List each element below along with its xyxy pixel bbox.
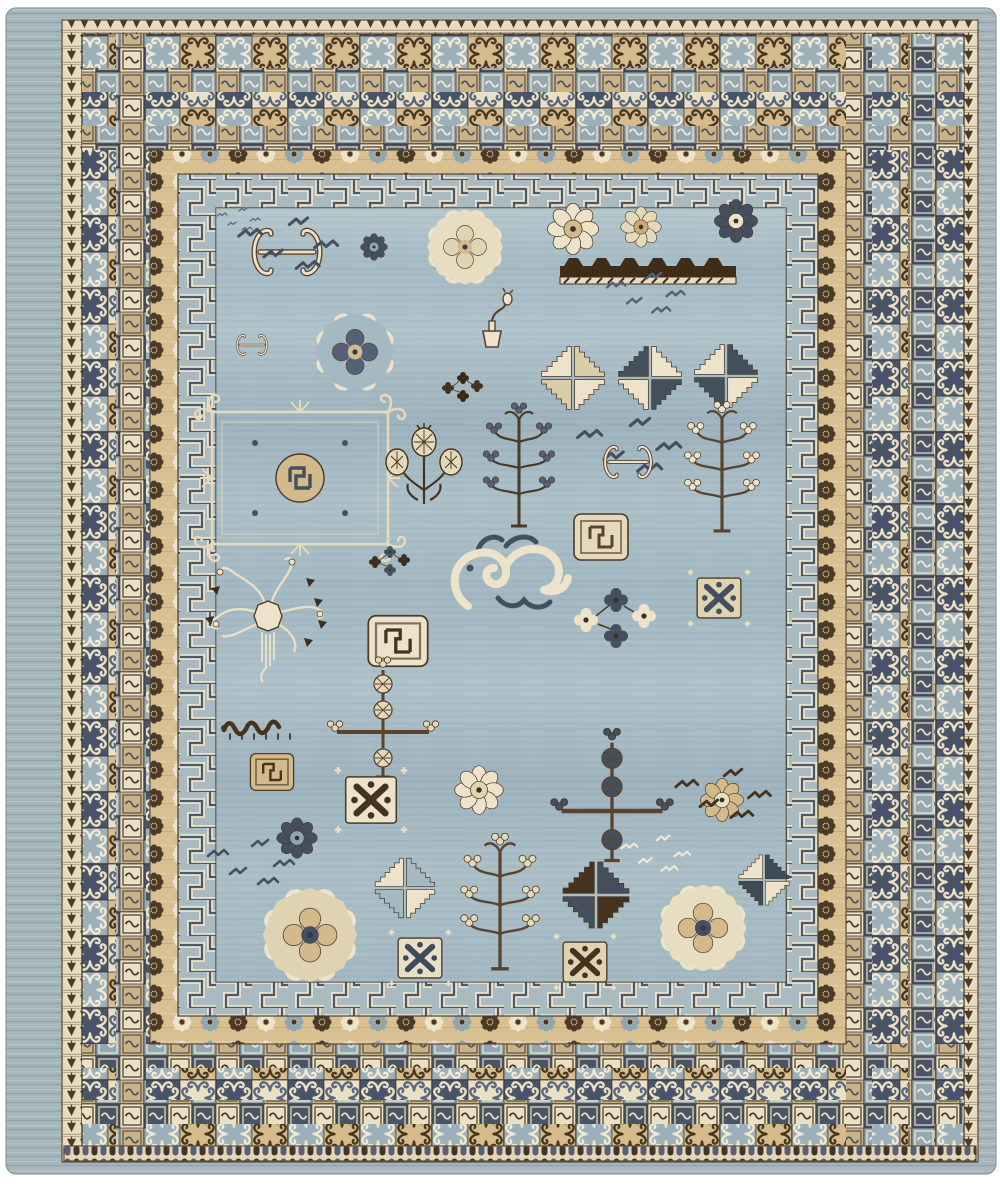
rug-photograph — [0, 0, 1000, 1188]
motif-scallop — [660, 885, 746, 971]
rug-image — [0, 0, 1000, 1188]
small-tile-row-top-a — [82, 68, 964, 92]
motif-scallop — [428, 210, 503, 285]
small-tile-row-bottom-a — [82, 1044, 964, 1068]
motif-rosette — [714, 199, 757, 242]
motif-rosette — [547, 203, 598, 254]
motif-rosette — [277, 818, 318, 859]
motif-scallop — [263, 888, 357, 982]
motif-fretcoin — [574, 514, 628, 560]
motif-fretcoin — [250, 754, 293, 791]
motif-scallop — [316, 313, 395, 392]
small-tile-row-top-b — [82, 126, 964, 150]
bead-edge-bottom — [64, 1146, 976, 1161]
small-tile-row-bottom-b — [82, 1100, 964, 1124]
small-tile-column-left — [116, 34, 146, 1154]
motif-rosette — [455, 766, 504, 815]
small-tile-column-right-b — [908, 34, 934, 1154]
motif-rosette — [621, 207, 662, 248]
rug-borders — [6, 8, 996, 1174]
motif-rosette — [361, 234, 388, 261]
small-tile-column-right-a — [846, 34, 872, 1154]
